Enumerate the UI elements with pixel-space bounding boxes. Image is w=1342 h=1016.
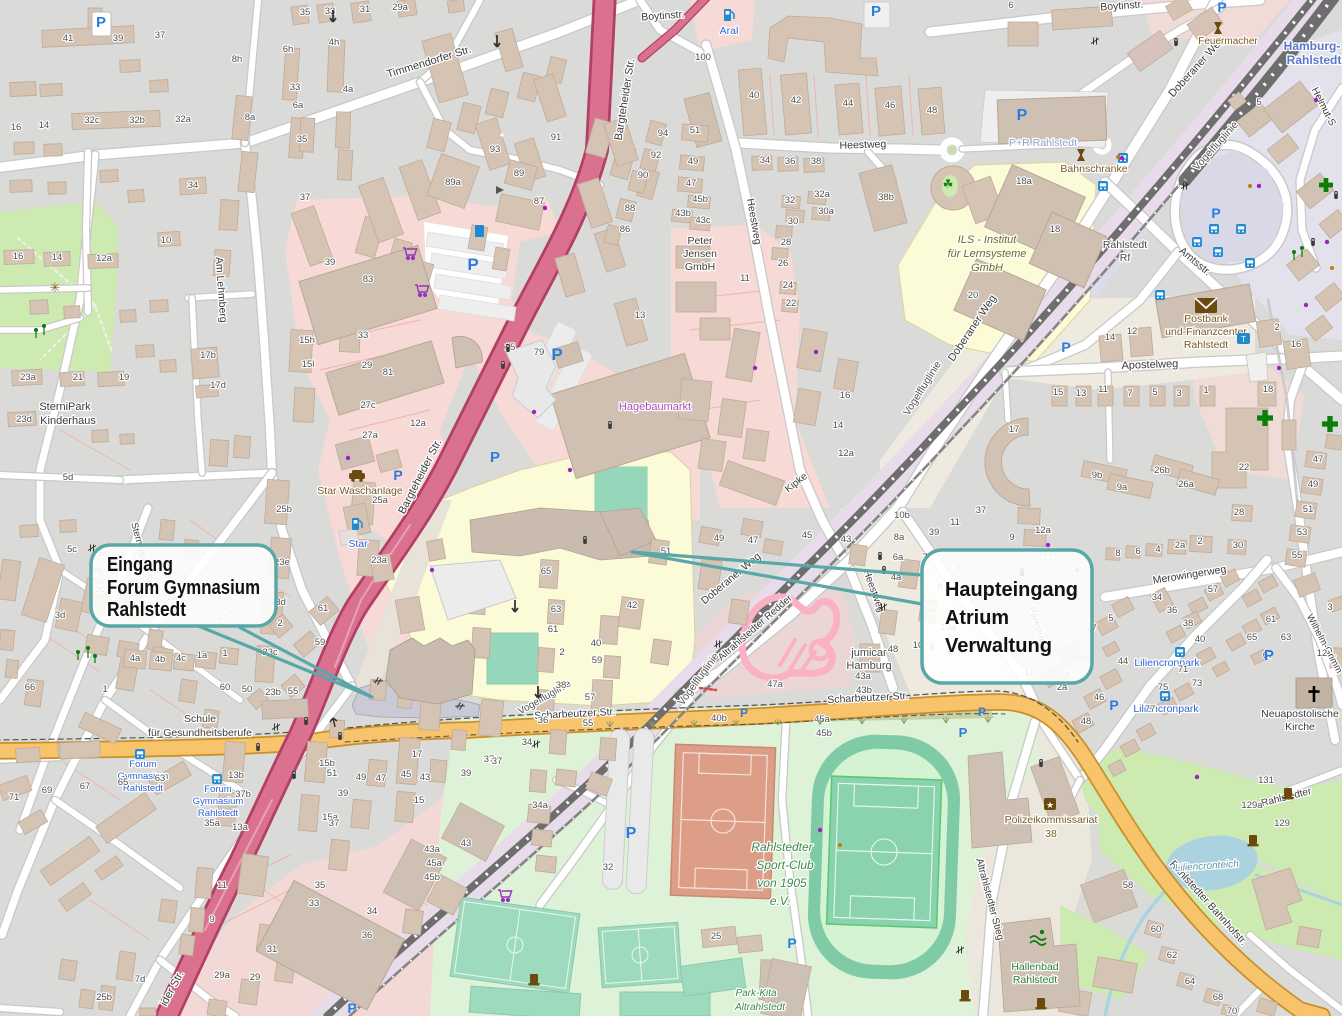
svg-text:51: 51 xyxy=(1303,504,1314,515)
svg-text:Rahlstedt: Rahlstedt xyxy=(107,599,186,621)
svg-text:9: 9 xyxy=(1009,532,1014,543)
svg-text:53: 53 xyxy=(1297,527,1308,538)
svg-text:Hallenbad: Hallenbad xyxy=(1011,961,1058,973)
svg-text:Star: Star xyxy=(348,538,368,550)
svg-text:35a: 35a xyxy=(204,818,221,829)
svg-text:87: 87 xyxy=(534,196,545,207)
svg-text:49: 49 xyxy=(688,156,699,167)
svg-text:2: 2 xyxy=(559,647,564,658)
svg-text:17: 17 xyxy=(412,749,423,760)
svg-text:Sport-Club: Sport-Club xyxy=(756,858,814,872)
svg-text:Forum Gymnasium: Forum Gymnasium xyxy=(107,577,260,599)
svg-text:15: 15 xyxy=(414,795,425,806)
svg-text:38: 38 xyxy=(811,156,822,167)
svg-text:23a: 23a xyxy=(20,372,37,383)
svg-text:6: 6 xyxy=(1008,0,1013,11)
svg-text:✳: ✳ xyxy=(50,280,61,295)
svg-text:12a: 12a xyxy=(96,253,113,264)
svg-text:8a: 8a xyxy=(894,532,905,543)
svg-text:★: ★ xyxy=(1046,800,1054,810)
svg-text:21: 21 xyxy=(73,372,84,383)
svg-text:66: 66 xyxy=(25,682,36,693)
svg-text:Feuermacher: Feuermacher xyxy=(1198,36,1258,47)
svg-text:ILS - Institut: ILS - Institut xyxy=(958,234,1018,246)
svg-text:Rahlstedt: Rahlstedt xyxy=(1287,53,1342,67)
svg-text:P: P xyxy=(467,255,478,274)
svg-text:P: P xyxy=(1017,107,1028,124)
svg-text:4b: 4b xyxy=(155,654,166,665)
svg-text:61: 61 xyxy=(1266,614,1277,625)
svg-text:42: 42 xyxy=(627,600,638,611)
svg-text:32b: 32b xyxy=(129,115,145,126)
svg-text:3d: 3d xyxy=(55,610,66,621)
svg-text:38: 38 xyxy=(1183,618,1194,629)
svg-text:43b: 43b xyxy=(675,208,691,219)
svg-text:Verwaltung: Verwaltung xyxy=(945,635,1052,657)
svg-text:11: 11 xyxy=(950,517,960,528)
svg-text:34: 34 xyxy=(522,737,533,748)
svg-text:9a: 9a xyxy=(1117,482,1128,493)
svg-text:14: 14 xyxy=(52,252,63,263)
svg-text:63: 63 xyxy=(1281,632,1292,643)
svg-text:19: 19 xyxy=(119,372,130,383)
svg-text:12: 12 xyxy=(1127,326,1138,337)
svg-text:70: 70 xyxy=(1227,1006,1238,1016)
svg-text:7d: 7d xyxy=(135,974,146,985)
svg-text:32: 32 xyxy=(603,862,614,873)
svg-text:5: 5 xyxy=(1152,387,1157,398)
svg-text:59: 59 xyxy=(315,637,326,648)
svg-text:51: 51 xyxy=(327,768,338,779)
svg-text:34: 34 xyxy=(188,180,199,191)
svg-text:49: 49 xyxy=(714,533,725,544)
svg-text:26a: 26a xyxy=(1178,479,1195,490)
svg-text:4a: 4a xyxy=(130,653,141,664)
svg-text:Altrahlstedt: Altrahlstedt xyxy=(734,1002,786,1013)
svg-text:89: 89 xyxy=(514,168,525,179)
svg-text:94: 94 xyxy=(658,128,669,139)
svg-text:Bahnschranke: Bahnschranke xyxy=(1060,163,1127,175)
svg-text:88: 88 xyxy=(625,203,636,214)
svg-text:39: 39 xyxy=(325,257,336,268)
svg-text:17d: 17d xyxy=(210,380,226,391)
svg-text:39: 39 xyxy=(338,788,349,799)
svg-text:34a: 34a xyxy=(532,800,549,811)
svg-text:45a: 45a xyxy=(814,714,831,725)
svg-text:Eingang: Eingang xyxy=(107,554,173,576)
svg-text:für Gesundheitsberufe: für Gesundheitsberufe xyxy=(148,727,252,739)
svg-text:2a: 2a xyxy=(1175,540,1186,551)
svg-text:37: 37 xyxy=(300,192,311,203)
svg-text:58: 58 xyxy=(1123,880,1134,891)
svg-text:Hagebaumarkt: Hagebaumarkt xyxy=(619,401,691,413)
svg-text:P+R Rahlstedt: P+R Rahlstedt xyxy=(1009,137,1077,149)
svg-text:13b: 13b xyxy=(228,770,244,781)
svg-text:39: 39 xyxy=(929,527,940,538)
svg-text:49: 49 xyxy=(356,772,367,783)
svg-text:51: 51 xyxy=(690,125,701,136)
svg-text:46: 46 xyxy=(1094,692,1105,703)
svg-text:81: 81 xyxy=(383,367,394,378)
svg-text:P: P xyxy=(347,1000,356,1016)
svg-text:33: 33 xyxy=(358,330,369,341)
svg-text:67: 67 xyxy=(80,781,91,792)
svg-text:11: 11 xyxy=(217,880,227,891)
svg-text:23d: 23d xyxy=(16,414,32,425)
svg-text:Hamburg-: Hamburg- xyxy=(1284,39,1341,53)
svg-text:Kinderhaus: Kinderhaus xyxy=(40,415,96,427)
svg-text:4: 4 xyxy=(1155,544,1160,555)
svg-text:37: 37 xyxy=(155,30,166,41)
svg-text:4a: 4a xyxy=(343,84,354,95)
svg-text:P: P xyxy=(787,935,796,951)
svg-text:13a: 13a xyxy=(232,822,249,833)
svg-text:31: 31 xyxy=(360,4,371,15)
svg-text:12: 12 xyxy=(1317,648,1328,659)
svg-text:65: 65 xyxy=(541,566,552,577)
svg-text:83: 83 xyxy=(363,274,374,285)
svg-text:43: 43 xyxy=(420,772,431,783)
svg-text:25a: 25a xyxy=(372,495,389,506)
svg-text:6: 6 xyxy=(1135,546,1140,557)
svg-text:129a: 129a xyxy=(1241,800,1263,811)
svg-text:16: 16 xyxy=(840,390,851,401)
svg-text:49: 49 xyxy=(1308,479,1319,490)
svg-text:1: 1 xyxy=(102,684,107,695)
svg-text:38b: 38b xyxy=(878,192,894,203)
svg-text:36: 36 xyxy=(362,930,373,941)
svg-text:43a: 43a xyxy=(424,844,441,855)
svg-text:50: 50 xyxy=(242,684,253,695)
svg-text:33: 33 xyxy=(309,898,320,909)
svg-text:7: 7 xyxy=(1127,388,1132,399)
svg-text:57: 57 xyxy=(585,692,596,703)
svg-text:33: 33 xyxy=(290,82,301,93)
svg-text:SterniPark: SterniPark xyxy=(39,401,91,413)
svg-text:17: 17 xyxy=(1009,424,1020,435)
svg-text:Postbank: Postbank xyxy=(1184,313,1229,325)
svg-text:Haupteingang: Haupteingang xyxy=(945,579,1078,601)
svg-text:30a: 30a xyxy=(818,206,835,217)
svg-text:P: P xyxy=(393,467,402,483)
svg-text:92: 92 xyxy=(651,150,662,161)
svg-text:79: 79 xyxy=(534,347,545,358)
svg-text:25b: 25b xyxy=(96,992,112,1003)
svg-text:45b: 45b xyxy=(692,194,708,205)
svg-text:31: 31 xyxy=(267,944,278,955)
svg-text:GmbH: GmbH xyxy=(971,262,1003,274)
svg-text:64: 64 xyxy=(1185,976,1196,987)
svg-text:34: 34 xyxy=(760,155,771,166)
svg-text:40: 40 xyxy=(749,90,760,101)
svg-text:90: 90 xyxy=(638,170,649,181)
svg-text:P: P xyxy=(1211,205,1220,221)
svg-text:44: 44 xyxy=(1118,656,1129,667)
svg-text:100: 100 xyxy=(695,52,711,63)
svg-text:43b: 43b xyxy=(856,685,872,696)
svg-text:12a: 12a xyxy=(1035,525,1052,536)
svg-text:18: 18 xyxy=(1050,224,1061,235)
svg-text:48: 48 xyxy=(927,105,938,116)
svg-text:3: 3 xyxy=(1176,388,1181,399)
svg-text:Heestweg: Heestweg xyxy=(839,138,886,152)
svg-text:12a: 12a xyxy=(410,418,427,429)
svg-text:Liliencronpark: Liliencronpark xyxy=(1134,657,1200,669)
svg-text:28: 28 xyxy=(781,237,792,248)
svg-text:23b: 23b xyxy=(265,687,281,698)
svg-text:24: 24 xyxy=(783,280,794,291)
svg-text:57: 57 xyxy=(1208,584,1219,595)
svg-text:Rahlstedt: Rahlstedt xyxy=(123,783,163,794)
svg-text:37b: 37b xyxy=(235,789,251,800)
svg-text:55: 55 xyxy=(1292,550,1303,561)
svg-text:Rahlstedt: Rahlstedt xyxy=(1013,974,1057,986)
svg-text:14: 14 xyxy=(833,420,844,431)
svg-text:48: 48 xyxy=(1081,716,1092,727)
svg-text:29a: 29a xyxy=(214,970,231,981)
svg-text:43: 43 xyxy=(461,838,472,849)
svg-text:15l: 15l xyxy=(302,359,315,370)
svg-text:40b: 40b xyxy=(711,713,727,724)
svg-text:44: 44 xyxy=(843,98,854,109)
svg-text:e.V.: e.V. xyxy=(770,894,790,908)
svg-text:Atrium: Atrium xyxy=(945,607,1009,629)
svg-text:32: 32 xyxy=(785,195,796,206)
svg-text:34: 34 xyxy=(367,906,378,917)
svg-text:18a: 18a xyxy=(1016,176,1033,187)
svg-text:40: 40 xyxy=(1195,634,1206,645)
svg-text:Rf: Rf xyxy=(1120,252,1131,264)
svg-text:6a: 6a xyxy=(293,100,304,111)
svg-text:6h: 6h xyxy=(283,44,294,55)
svg-text:47: 47 xyxy=(686,178,697,189)
svg-text:20: 20 xyxy=(968,290,979,301)
svg-text:25: 25 xyxy=(711,931,722,942)
svg-text:93: 93 xyxy=(490,144,501,155)
svg-text:32c: 32c xyxy=(84,115,100,126)
svg-text:32a: 32a xyxy=(814,189,831,200)
svg-text:und-Finanzcenter: und-Finanzcenter xyxy=(1165,326,1247,338)
svg-text:Schule: Schule xyxy=(184,713,216,725)
svg-text:18: 18 xyxy=(1263,384,1274,395)
svg-text:23a: 23a xyxy=(371,555,388,566)
svg-text:Forum: Forum xyxy=(129,759,157,770)
svg-text:27c: 27c xyxy=(360,400,376,411)
svg-text:22: 22 xyxy=(786,298,797,309)
svg-text:P: P xyxy=(96,14,106,31)
svg-text:27a: 27a xyxy=(362,430,379,441)
svg-text:39: 39 xyxy=(113,33,124,44)
svg-text:34: 34 xyxy=(1152,592,1163,603)
svg-text:38: 38 xyxy=(1045,828,1057,840)
svg-text:12a: 12a xyxy=(838,448,855,459)
svg-text:63: 63 xyxy=(155,773,166,784)
svg-text:16: 16 xyxy=(13,251,24,262)
svg-text:29: 29 xyxy=(250,972,261,983)
svg-text:14: 14 xyxy=(39,120,50,131)
svg-text:5: 5 xyxy=(1256,97,1261,108)
svg-text:43c: 43c xyxy=(695,215,711,226)
svg-text:10b: 10b xyxy=(894,510,910,521)
svg-text:89a: 89a xyxy=(445,177,462,188)
svg-text:61: 61 xyxy=(548,624,559,635)
svg-text:47a: 47a xyxy=(767,679,784,690)
svg-text:41: 41 xyxy=(63,33,74,44)
svg-text:36: 36 xyxy=(1167,605,1178,616)
svg-text:11: 11 xyxy=(1098,384,1108,395)
svg-text:13: 13 xyxy=(1076,388,1087,399)
svg-text:25b: 25b xyxy=(276,504,292,515)
svg-text:42: 42 xyxy=(791,95,802,106)
svg-text:43a: 43a xyxy=(855,671,872,682)
svg-text:5d: 5d xyxy=(63,472,74,483)
svg-text:P: P xyxy=(740,706,748,720)
svg-text:8a: 8a xyxy=(245,112,256,123)
svg-text:P: P xyxy=(1264,647,1274,664)
svg-text:17b: 17b xyxy=(200,350,216,361)
svg-text:48: 48 xyxy=(888,644,899,655)
svg-text:Rahlstedt: Rahlstedt xyxy=(1184,339,1228,351)
svg-text:4c: 4c xyxy=(176,653,186,664)
svg-text:P: P xyxy=(978,705,986,719)
svg-text:2: 2 xyxy=(1274,322,1279,333)
svg-text:37: 37 xyxy=(329,818,340,829)
svg-text:71: 71 xyxy=(9,792,20,803)
svg-text:4h: 4h xyxy=(329,37,340,48)
svg-text:47: 47 xyxy=(748,535,759,546)
svg-text:15h: 15h xyxy=(299,335,315,346)
svg-text:5: 5 xyxy=(1108,613,1113,624)
svg-text:✝: ✝ xyxy=(1305,682,1323,707)
svg-text:8h: 8h xyxy=(232,54,243,65)
svg-text:29a: 29a xyxy=(392,2,409,13)
svg-text:35: 35 xyxy=(300,7,311,18)
svg-text:Rahlstedter: Rahlstedter xyxy=(751,840,813,854)
svg-text:32a: 32a xyxy=(175,114,192,125)
svg-text:55: 55 xyxy=(288,686,299,697)
svg-text:28: 28 xyxy=(1234,507,1245,518)
svg-text:26: 26 xyxy=(778,258,789,269)
svg-text:Neuapostolische: Neuapostolische xyxy=(1261,708,1339,720)
svg-text:60: 60 xyxy=(1151,924,1162,935)
svg-text:P: P xyxy=(551,345,562,364)
svg-text:Apostelweg: Apostelweg xyxy=(1121,358,1178,372)
svg-text:35: 35 xyxy=(315,880,326,891)
svg-text:13: 13 xyxy=(635,310,646,321)
svg-text:16: 16 xyxy=(11,122,22,133)
svg-text:9: 9 xyxy=(209,914,214,925)
svg-text:11: 11 xyxy=(740,273,750,284)
svg-text:38: 38 xyxy=(556,680,567,691)
svg-text:Rahlstedt: Rahlstedt xyxy=(1103,239,1147,251)
svg-text:71: 71 xyxy=(1178,664,1189,675)
svg-text:Aral: Aral xyxy=(720,25,739,37)
svg-text:36: 36 xyxy=(785,156,796,167)
svg-text:GmbH: GmbH xyxy=(685,261,715,273)
svg-text:55: 55 xyxy=(583,718,594,729)
svg-text:22: 22 xyxy=(1239,462,1250,473)
svg-text:63: 63 xyxy=(551,604,562,615)
svg-text:1: 1 xyxy=(222,648,227,659)
svg-text:46: 46 xyxy=(885,100,896,111)
svg-text:P: P xyxy=(490,449,500,466)
svg-text:131: 131 xyxy=(1258,775,1274,786)
svg-text:60: 60 xyxy=(220,682,231,693)
svg-text:69: 69 xyxy=(42,785,53,796)
svg-text:86: 86 xyxy=(620,224,631,235)
svg-text:47: 47 xyxy=(376,773,387,784)
svg-text:45: 45 xyxy=(802,530,813,541)
svg-text:T: T xyxy=(1241,335,1246,344)
svg-text:36: 36 xyxy=(538,715,549,726)
svg-text:Park-Kita: Park-Kita xyxy=(735,988,777,999)
svg-text:129: 129 xyxy=(1274,818,1290,829)
svg-text:73: 73 xyxy=(1192,678,1203,689)
svg-text:59: 59 xyxy=(592,655,603,666)
svg-text:30: 30 xyxy=(1233,540,1244,551)
svg-text:16: 16 xyxy=(1291,339,1302,350)
svg-text:37: 37 xyxy=(976,505,987,516)
svg-text:Liliencronpark: Liliencronpark xyxy=(1133,703,1199,715)
svg-text:P: P xyxy=(959,725,968,740)
svg-text:1: 1 xyxy=(1203,385,1208,396)
svg-text:65: 65 xyxy=(1247,632,1258,643)
svg-text:2: 2 xyxy=(277,618,282,629)
svg-text:P: P xyxy=(1217,0,1226,15)
svg-text:15: 15 xyxy=(1053,387,1064,398)
svg-text:37: 37 xyxy=(492,756,503,767)
svg-text:35: 35 xyxy=(297,134,308,145)
svg-text:P: P xyxy=(1109,697,1118,713)
svg-text:jumicar: jumicar xyxy=(850,647,887,659)
svg-text:P: P xyxy=(626,825,637,842)
svg-text:47: 47 xyxy=(1313,454,1324,465)
svg-text:39: 39 xyxy=(461,768,472,779)
svg-text:3: 3 xyxy=(1327,602,1332,613)
svg-text:91: 91 xyxy=(551,132,562,143)
svg-text:14: 14 xyxy=(1105,332,1116,343)
svg-text:62: 62 xyxy=(1167,950,1178,961)
svg-text:61: 61 xyxy=(318,603,329,614)
svg-text:26b: 26b xyxy=(1154,465,1170,476)
svg-text:68: 68 xyxy=(1213,992,1224,1003)
svg-text:6a: 6a xyxy=(893,552,904,563)
svg-text:40: 40 xyxy=(591,638,602,649)
svg-text:von 1905: von 1905 xyxy=(757,876,807,890)
svg-text:für Lernsysteme: für Lernsysteme xyxy=(948,248,1027,260)
svg-text:45: 45 xyxy=(401,769,412,780)
svg-text:Jensen: Jensen xyxy=(683,248,717,260)
svg-text:77: 77 xyxy=(1145,704,1156,715)
svg-text:5c: 5c xyxy=(67,544,77,555)
svg-text:8: 8 xyxy=(1115,548,1120,559)
svg-text:9b: 9b xyxy=(1092,470,1103,481)
svg-text:10: 10 xyxy=(161,235,172,246)
svg-text:Star Waschanlage: Star Waschanlage xyxy=(317,485,403,497)
svg-text:65: 65 xyxy=(118,777,129,788)
svg-text:Peter: Peter xyxy=(687,235,713,247)
svg-text:P: P xyxy=(1061,339,1070,355)
svg-text:P: P xyxy=(871,3,881,20)
svg-text:Kirche: Kirche xyxy=(1285,721,1315,733)
svg-text:☘: ☘ xyxy=(943,177,954,191)
svg-text:45a: 45a xyxy=(426,858,443,869)
svg-text:1a: 1a xyxy=(197,650,208,661)
svg-text:Polizeikommissariat: Polizeikommissariat xyxy=(1005,814,1098,826)
svg-text:45b: 45b xyxy=(816,728,832,739)
svg-text:30: 30 xyxy=(788,216,799,227)
svg-text:Forum: Forum xyxy=(204,784,232,795)
